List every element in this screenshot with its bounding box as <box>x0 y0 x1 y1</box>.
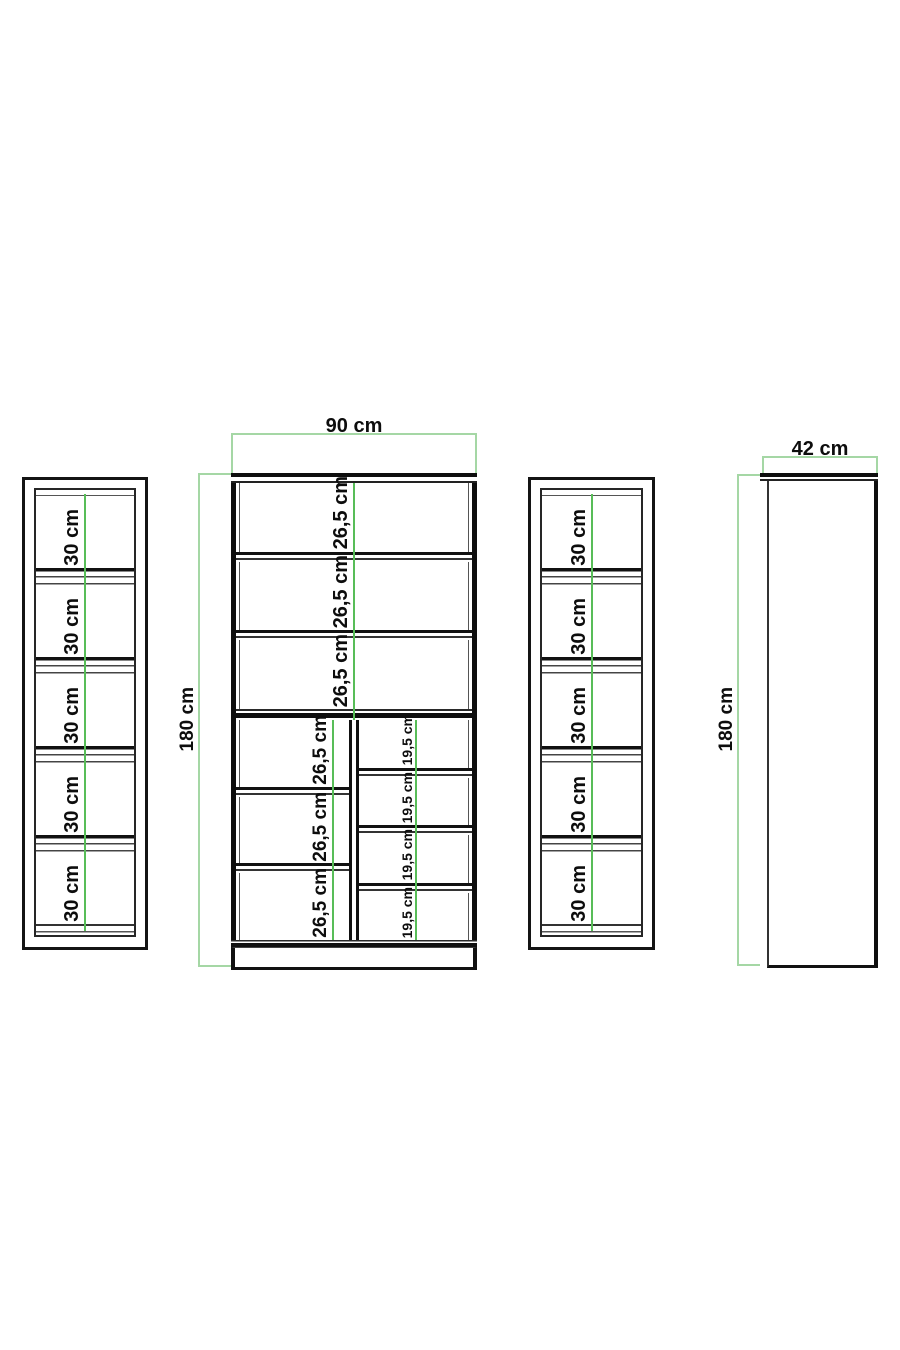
side-top-panel-edge <box>760 473 878 481</box>
front-view: 26,5 cm 26,5 cm 26,5 cm 26,5 cm <box>231 473 477 970</box>
height-dimension-bracket-front: 180 cm <box>198 473 231 967</box>
compartment-dimension-label: 19,5 cm <box>400 714 414 765</box>
cabinet-body: 26,5 cm 26,5 cm 26,5 cm 26,5 cm <box>231 483 477 940</box>
technical-drawing-canvas: 30 cm 30 cm 30 cm 30 cm 30 cm 90 cm 1 <box>0 0 900 1350</box>
middle-panel-frame: 30 cm 30 cm 30 cm 30 cm 30 cm <box>540 488 643 937</box>
compartment: 30 cm <box>36 763 134 835</box>
compartment-dimension-label: 30 cm <box>62 598 82 655</box>
compartment-dimension-label: 26,5 cm <box>331 476 351 549</box>
width-dimension-bracket-front: 90 cm <box>231 433 477 473</box>
compartment: 30 cm <box>36 674 134 746</box>
compartment: 30 cm <box>542 763 641 835</box>
compartment-dimension-label: 26,5 cm <box>311 868 330 938</box>
compartment: 26,5 cm <box>236 640 472 709</box>
cabinet-plinth <box>231 947 477 970</box>
compartment: 26,5 cm <box>236 720 349 787</box>
vertical-divider-panel <box>349 720 359 940</box>
compartment-dimension-label: 30 cm <box>62 865 82 922</box>
compartment-dimension-label: 30 cm <box>569 865 589 922</box>
compartment: 19,5 cm <box>359 835 472 883</box>
left-panel-view: 30 cm 30 cm 30 cm 30 cm 30 cm <box>22 477 148 950</box>
compartment-dimension-label: 19,5 cm <box>400 829 414 880</box>
height-dimension-label-side: 180 cm <box>717 687 736 751</box>
compartment-dimension-label: 26,5 cm <box>311 715 330 785</box>
compartment: 30 cm <box>36 585 134 657</box>
compartment-dimension-label: 30 cm <box>569 687 589 744</box>
compartment-dimension-label: 26,5 cm <box>311 792 330 862</box>
compartment-dimension-label: 30 cm <box>62 509 82 566</box>
compartment: 30 cm <box>36 852 134 924</box>
compartment: 19,5 cm <box>359 778 472 826</box>
compartment: 30 cm <box>542 852 641 924</box>
cabinet-bottom-panel <box>231 940 477 947</box>
compartment: 26,5 cm <box>236 797 349 864</box>
compartment: 30 cm <box>36 496 134 568</box>
width-dimension-label-front: 90 cm <box>326 415 383 438</box>
compartment-dimension-label: 26,5 cm <box>331 555 351 628</box>
compartment-dimension-label: 30 cm <box>62 776 82 833</box>
compartment: 26,5 cm <box>236 873 349 940</box>
cabinet-top-panel <box>231 473 477 483</box>
compartment-dimension-label: 30 cm <box>62 687 82 744</box>
compartment-dimension-label: 30 cm <box>569 509 589 566</box>
cabinet-lower-section: 26,5 cm 26,5 cm 26,5 cm 19,5 cm <box>236 720 472 940</box>
compartment-dimension-label: 30 cm <box>569 776 589 833</box>
compartment: 19,5 cm <box>359 893 472 941</box>
height-dimension-bracket-side: 180 cm <box>737 474 760 966</box>
compartment-dimension-label: 19,5 cm <box>400 772 414 823</box>
compartment: 26,5 cm <box>236 483 472 552</box>
left-panel-frame: 30 cm 30 cm 30 cm 30 cm 30 cm <box>34 488 136 937</box>
compartment-dimension-label: 30 cm <box>569 598 589 655</box>
compartment: 30 cm <box>542 674 641 746</box>
side-view <box>760 473 878 968</box>
lower-left-column: 26,5 cm 26,5 cm 26,5 cm <box>236 720 349 940</box>
compartment: 26,5 cm <box>236 562 472 631</box>
compartment: 30 cm <box>542 585 641 657</box>
compartment-dimension-label: 19,5 cm <box>400 887 414 938</box>
compartment-dimension-label: 26,5 cm <box>331 634 351 707</box>
middle-panel-view: 30 cm 30 cm 30 cm 30 cm 30 cm <box>528 477 655 950</box>
compartment: 19,5 cm <box>359 720 472 768</box>
height-dimension-label-front: 180 cm <box>178 687 197 751</box>
side-panel-body <box>767 481 878 968</box>
cabinet-upper-section: 26,5 cm 26,5 cm 26,5 cm <box>236 483 472 720</box>
lower-right-column: 19,5 cm 19,5 cm 19,5 cm 19,5 cm <box>359 720 472 940</box>
width-dimension-label-side: 42 cm <box>792 438 849 461</box>
compartment: 30 cm <box>542 496 641 568</box>
